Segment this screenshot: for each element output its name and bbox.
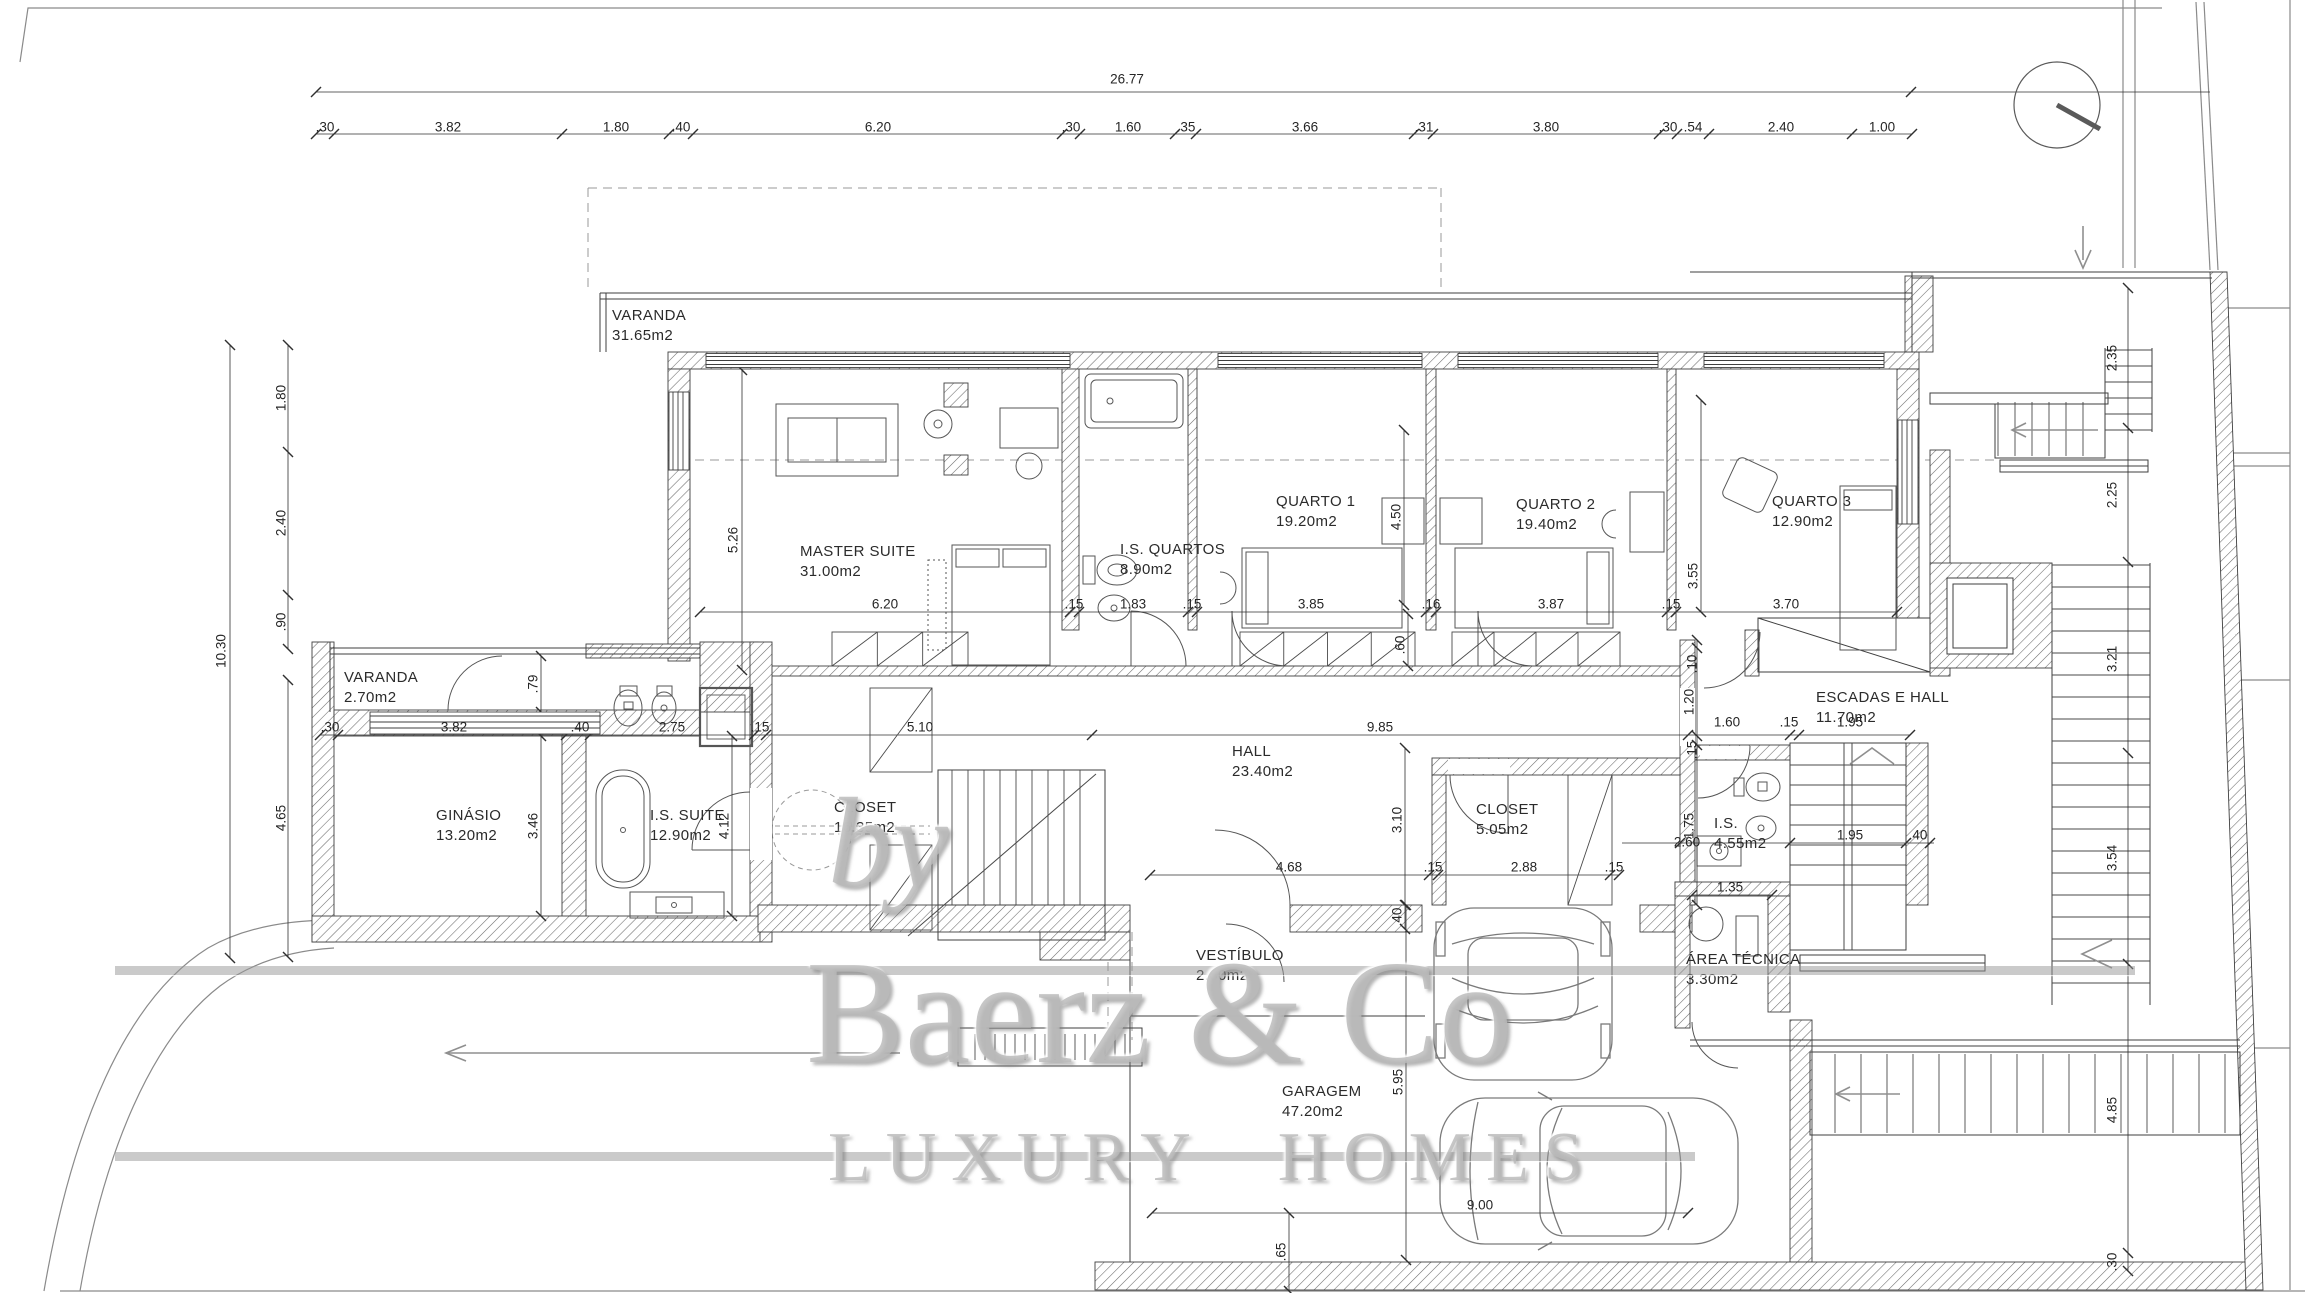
wardrobes <box>832 632 1620 930</box>
compass-icon <box>2014 62 2100 148</box>
watermark-by: by <box>828 770 949 917</box>
watermark-tagline: LUXURY HOMES <box>828 1118 1598 1198</box>
floor-plan-page: VARANDA31.65m2MASTER SUITE31.00m2I.S. QU… <box>0 0 2305 1293</box>
dimension-ticks <box>225 87 2133 1293</box>
watermark-brand: Baerz & Co <box>806 928 1513 1098</box>
structure-lines <box>330 272 2240 1262</box>
floor-plan-drawing <box>0 0 2305 1293</box>
